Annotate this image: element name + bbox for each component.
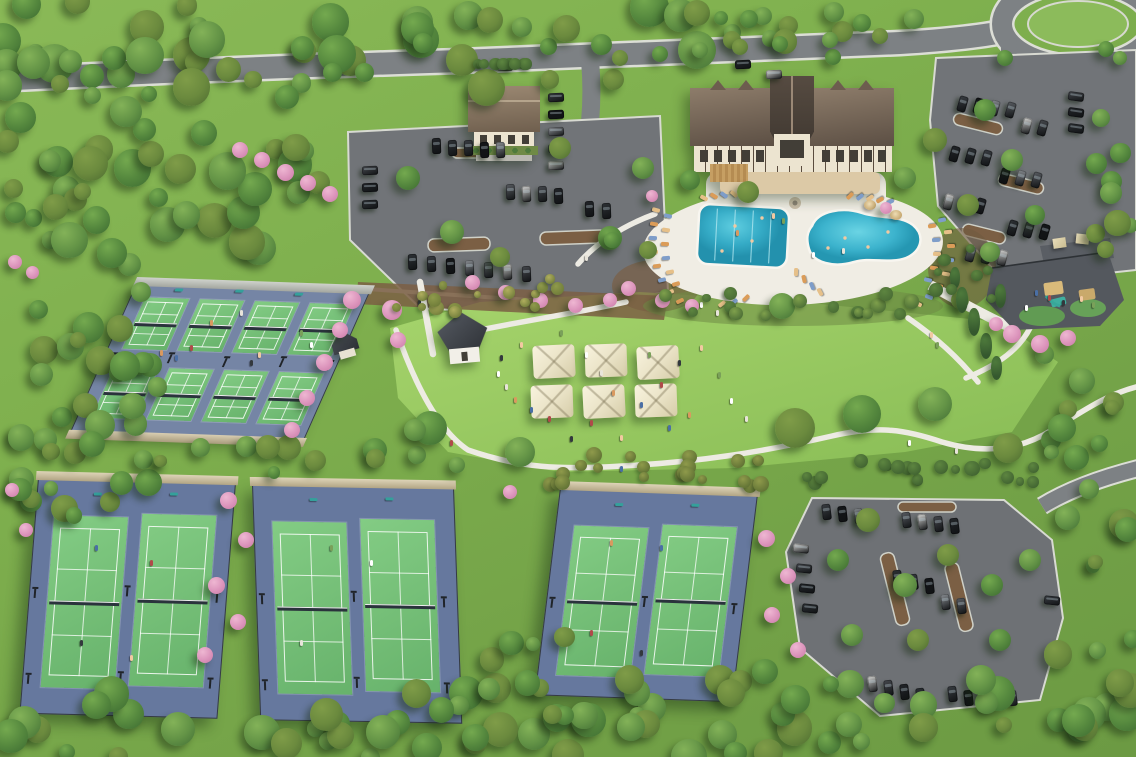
tree (499, 631, 524, 656)
tree (827, 549, 849, 571)
tree (1044, 445, 1059, 460)
bush (698, 475, 707, 484)
bush (659, 289, 672, 302)
bush (854, 308, 863, 317)
tree (0, 719, 28, 753)
tree (440, 220, 464, 244)
tree (684, 0, 710, 26)
tree (737, 181, 759, 203)
tree (918, 387, 952, 421)
tree (923, 128, 947, 152)
tree (872, 28, 888, 44)
bush (987, 294, 996, 303)
tree (43, 194, 68, 219)
tree (1003, 325, 1021, 343)
tree (197, 647, 213, 663)
tree (65, 0, 90, 14)
tree (66, 507, 83, 524)
tree (277, 164, 294, 181)
bush (537, 282, 548, 293)
bush (854, 454, 868, 468)
tree (191, 438, 210, 457)
conifer-tree (980, 333, 992, 359)
tree (236, 436, 257, 457)
tree (256, 435, 280, 459)
tree (408, 446, 426, 464)
tree (1088, 555, 1102, 569)
tree (126, 37, 163, 74)
tree (907, 629, 929, 651)
tree (177, 0, 197, 16)
tree (1064, 445, 1090, 471)
tree (107, 315, 133, 341)
tree (0, 70, 22, 100)
tree (824, 2, 844, 22)
tree (1089, 642, 1106, 659)
bush (862, 308, 873, 319)
aerial-rendering: Aerial rendering of a community amenity … (0, 0, 1136, 757)
tree (909, 713, 938, 742)
tree (989, 317, 1003, 331)
tree (981, 574, 1003, 596)
tree (51, 222, 88, 259)
bush (1028, 462, 1039, 473)
tree (836, 670, 863, 697)
tree (5, 102, 36, 133)
tree (4, 179, 23, 198)
tree (1110, 143, 1130, 163)
tree (282, 134, 309, 161)
tree (1115, 517, 1136, 542)
tree (841, 624, 863, 646)
tree (1086, 224, 1105, 243)
tree (1091, 435, 1108, 452)
tree (775, 408, 815, 448)
tree (980, 242, 1000, 262)
bush (497, 58, 510, 71)
tree (323, 63, 342, 82)
bush (503, 286, 515, 298)
tree (30, 363, 53, 386)
tree (781, 685, 809, 713)
tree (974, 99, 996, 121)
tree (322, 186, 338, 202)
tree (70, 332, 86, 348)
tree (110, 96, 141, 127)
bush (428, 293, 441, 306)
bush (545, 274, 555, 284)
tree (603, 69, 624, 90)
conifer-tree (995, 284, 1006, 308)
tree (305, 450, 326, 471)
tree (818, 731, 841, 754)
tree (732, 39, 748, 55)
bush (802, 472, 811, 481)
bush (828, 301, 839, 312)
tree (894, 167, 916, 189)
tree (515, 670, 541, 696)
tree (30, 336, 58, 364)
tree (752, 659, 777, 684)
bush (966, 244, 976, 254)
tree (512, 17, 533, 38)
bush (520, 298, 529, 307)
tree (526, 637, 540, 651)
tree (543, 705, 562, 724)
tree (141, 86, 157, 102)
tree (59, 744, 75, 757)
tree (1105, 400, 1120, 415)
tree (404, 419, 426, 441)
tree (1001, 149, 1023, 171)
tree (109, 747, 129, 757)
tree (208, 577, 225, 594)
tree (29, 300, 48, 319)
tree (238, 532, 254, 548)
tree (874, 693, 894, 713)
tree (284, 422, 300, 438)
tree (591, 34, 612, 55)
tree (997, 50, 1013, 66)
tree (1104, 210, 1130, 236)
tree (646, 190, 658, 202)
tree (790, 642, 806, 658)
bush (891, 460, 904, 473)
bush (894, 308, 906, 320)
tree (554, 627, 574, 647)
bush (1001, 471, 1014, 484)
tree (1097, 241, 1114, 258)
tree (468, 69, 505, 106)
tree (8, 424, 34, 450)
tree (191, 120, 217, 146)
tree (73, 146, 108, 181)
tree (490, 247, 510, 267)
tree (1100, 182, 1122, 204)
tree (97, 238, 126, 267)
tree (173, 68, 210, 105)
tree (1025, 205, 1045, 225)
bush (575, 460, 587, 472)
bush (520, 58, 531, 69)
tree (615, 665, 644, 694)
tree (630, 0, 669, 27)
tree (12, 0, 41, 19)
tree (1031, 335, 1049, 353)
tree (893, 573, 917, 597)
bush (479, 59, 490, 70)
bush (731, 454, 745, 468)
tree (639, 241, 657, 259)
bush (474, 291, 481, 298)
bush (760, 310, 771, 321)
tree (680, 170, 700, 190)
tree (254, 152, 270, 168)
bush (724, 287, 737, 300)
tree (343, 291, 361, 309)
tree (632, 157, 654, 179)
tree (1113, 51, 1127, 65)
tree (291, 36, 314, 59)
bush (680, 467, 695, 482)
bush (1027, 476, 1038, 487)
tree (413, 33, 433, 53)
tree (652, 46, 668, 62)
tree (232, 142, 248, 158)
tree (275, 85, 299, 109)
tree (769, 293, 795, 319)
tree (717, 679, 745, 707)
tree (0, 130, 19, 153)
bush (934, 268, 942, 276)
tree (366, 449, 385, 468)
tree (135, 469, 162, 496)
tree (714, 11, 729, 26)
bush (793, 294, 807, 308)
bush (912, 474, 923, 485)
bush (951, 465, 961, 475)
tree (154, 455, 167, 468)
tree (332, 322, 348, 338)
tree (764, 607, 780, 623)
tree (52, 407, 72, 427)
tree (1124, 630, 1136, 648)
bush (929, 283, 943, 297)
tree (39, 150, 61, 172)
bush (702, 294, 710, 302)
tree (299, 390, 315, 406)
tree (316, 354, 333, 371)
tree (8, 255, 22, 269)
bush (586, 447, 602, 463)
bush (417, 291, 428, 302)
tree (880, 202, 892, 214)
tree (612, 50, 628, 66)
tree (478, 678, 499, 699)
tree (1048, 414, 1076, 442)
tree (220, 492, 237, 509)
bush (729, 307, 742, 320)
tree (549, 137, 571, 159)
tree (148, 377, 168, 397)
tree (165, 154, 195, 184)
tree (477, 7, 503, 33)
tree (989, 629, 1011, 651)
bush (753, 476, 769, 492)
tree (366, 715, 400, 749)
bush (688, 307, 698, 317)
tree (59, 50, 83, 74)
bush (905, 294, 920, 309)
conifer-tree (968, 308, 980, 336)
tree (412, 733, 441, 757)
tree (19, 523, 33, 537)
tree (1106, 669, 1134, 697)
tree (996, 717, 1012, 733)
bush (938, 254, 950, 266)
tree (617, 713, 645, 741)
tree (780, 568, 796, 584)
flora-layer (0, 0, 1136, 757)
bush (946, 284, 957, 295)
tree (429, 697, 454, 722)
tree (1044, 640, 1073, 669)
tree (268, 466, 281, 479)
bush (551, 282, 564, 295)
bush (418, 303, 426, 311)
conifer-tree (991, 356, 1002, 380)
bush (983, 266, 993, 276)
tree (216, 57, 241, 82)
tree (1069, 368, 1095, 394)
bush (637, 461, 649, 473)
bush (964, 461, 980, 477)
tree (361, 748, 380, 757)
bush (878, 458, 891, 471)
tree (230, 614, 246, 630)
bush (879, 287, 893, 301)
tree (110, 351, 141, 382)
tree (937, 544, 959, 566)
tree (1055, 505, 1080, 530)
tree (1079, 479, 1099, 499)
tree (957, 194, 979, 216)
tree (110, 471, 134, 495)
tree (1092, 109, 1111, 128)
bush (625, 451, 636, 462)
tree (823, 676, 839, 692)
bush (593, 463, 603, 473)
tree (604, 232, 620, 248)
tree (993, 433, 1023, 463)
tree (904, 9, 924, 29)
tree (355, 63, 374, 82)
bush (530, 302, 540, 312)
bush (971, 270, 983, 282)
tree (540, 38, 557, 55)
tree (229, 224, 264, 259)
tree (82, 691, 110, 719)
tree (80, 64, 105, 89)
tree (149, 188, 168, 207)
bush (449, 306, 461, 318)
tree (79, 431, 105, 457)
tree (26, 266, 39, 279)
tree (51, 75, 69, 93)
tree (1098, 41, 1114, 57)
tree (724, 742, 746, 757)
tree (1060, 330, 1076, 346)
tree (5, 202, 26, 223)
tree (17, 46, 50, 79)
tree (480, 647, 505, 672)
bush (555, 475, 570, 490)
tree (822, 32, 838, 48)
tree (503, 485, 517, 499)
tree (402, 679, 431, 708)
bush (815, 471, 827, 483)
tree (505, 437, 535, 467)
tree (740, 10, 758, 28)
tree (465, 275, 480, 290)
tree (138, 141, 164, 167)
tree (603, 293, 617, 307)
conifer-tree (956, 287, 968, 313)
tree (189, 21, 225, 57)
tree (25, 209, 42, 226)
tree (134, 450, 153, 469)
tree (621, 281, 636, 296)
bush (639, 472, 649, 482)
bush (979, 458, 991, 470)
tree (853, 733, 871, 751)
tree (161, 712, 195, 746)
tree (843, 395, 881, 433)
tree (84, 87, 101, 104)
tree (449, 457, 465, 473)
tree (271, 728, 302, 757)
tree (5, 483, 19, 497)
tree (553, 15, 580, 42)
tree (244, 71, 262, 89)
tree (692, 42, 708, 58)
tree (173, 201, 201, 229)
bush (1016, 477, 1025, 486)
tree (754, 739, 783, 757)
tree (83, 206, 111, 234)
tree (853, 14, 871, 32)
bush (439, 281, 448, 290)
tree (42, 443, 60, 461)
tree (758, 530, 775, 547)
tree (772, 36, 788, 52)
tree (102, 46, 126, 70)
tree (541, 70, 559, 88)
tree (44, 481, 59, 496)
bush (934, 460, 948, 474)
tree (119, 393, 145, 419)
tree (856, 508, 880, 532)
tree (568, 298, 583, 313)
tree (1086, 153, 1107, 174)
tree (396, 166, 420, 190)
tree (300, 175, 316, 191)
bush (509, 58, 521, 70)
tree (131, 282, 151, 302)
tree (74, 183, 91, 200)
tree (100, 492, 120, 512)
bush (753, 455, 764, 466)
tree (552, 739, 584, 757)
tree (825, 49, 841, 65)
tree (390, 332, 406, 348)
tree (671, 739, 706, 757)
tree (1019, 549, 1041, 571)
